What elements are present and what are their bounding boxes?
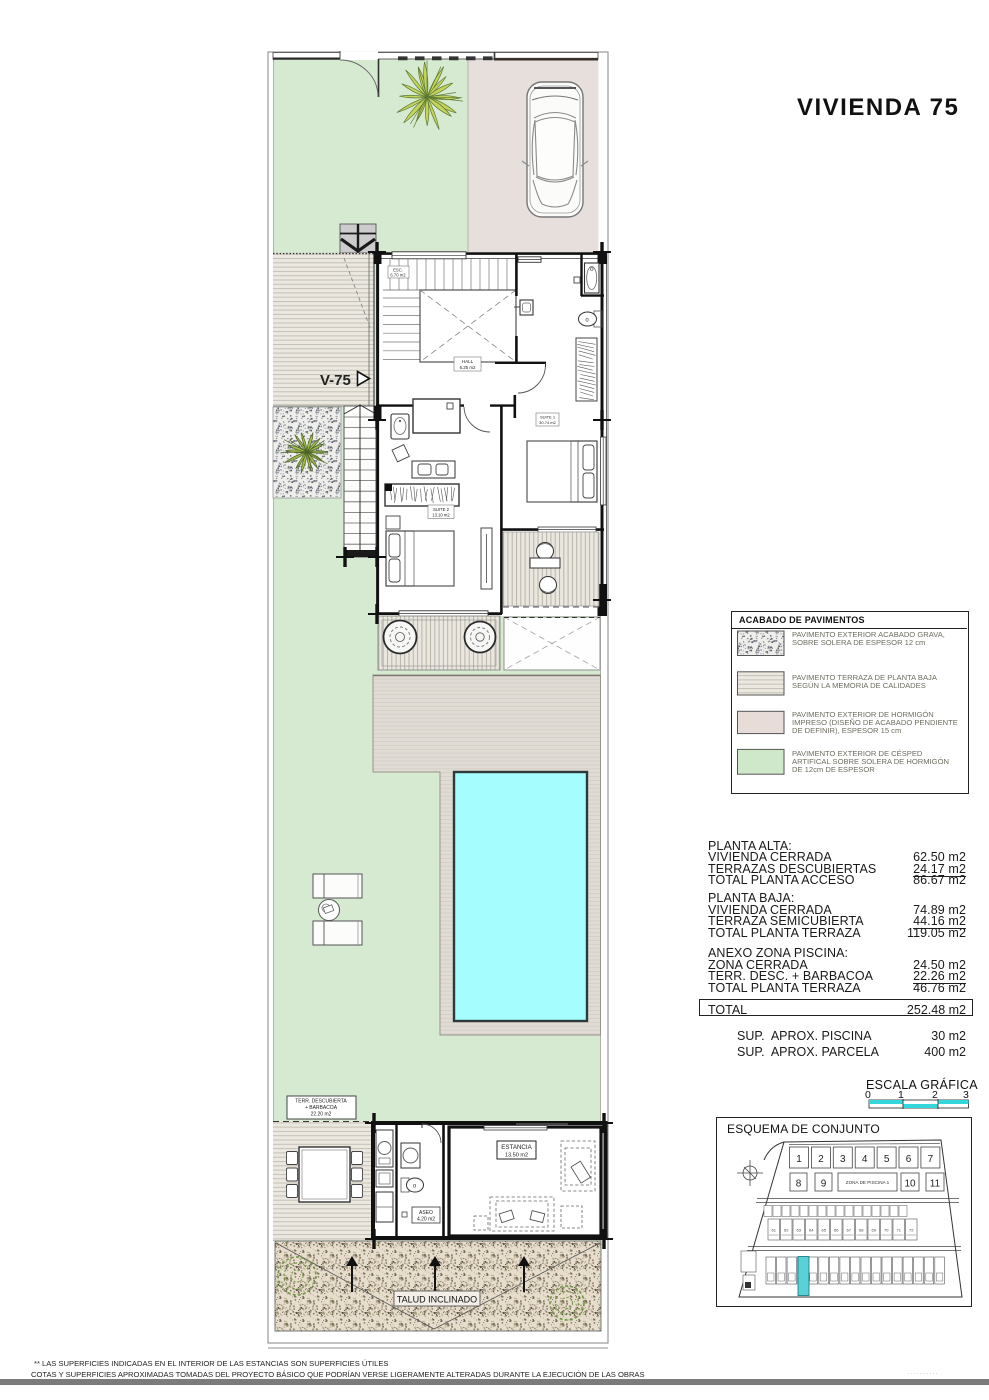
svg-text:SUITE 1: SUITE 1 [540, 415, 556, 420]
svg-text:4.20 m2: 4.20 m2 [417, 1217, 435, 1223]
svg-text:6.70 m2: 6.70 m2 [390, 273, 406, 278]
svg-text:SUITE 2: SUITE 2 [433, 507, 449, 512]
svg-text:13.10 m2: 13.10 m2 [432, 513, 450, 518]
svg-text:V-75: V-75 [320, 372, 351, 389]
svg-text:ESTANCIA: ESTANCIA [501, 1144, 532, 1151]
svg-text:22.20 m2: 22.20 m2 [311, 1112, 332, 1118]
svg-text:HALL: HALL [462, 359, 474, 364]
svg-text:13.50 m2: 13.50 m2 [505, 1153, 528, 1159]
svg-text:TERR. DESCUBIERTA: TERR. DESCUBIERTA [295, 1099, 347, 1105]
svg-text:ASEO: ASEO [419, 1210, 433, 1216]
svg-text:6.25 m2: 6.25 m2 [460, 365, 476, 370]
svg-text:TALUD INCLINADO: TALUD INCLINADO [397, 1295, 477, 1305]
svg-text:+ BARBACOA: + BARBACOA [305, 1105, 338, 1111]
svg-text:30.74 m2: 30.74 m2 [539, 420, 556, 425]
